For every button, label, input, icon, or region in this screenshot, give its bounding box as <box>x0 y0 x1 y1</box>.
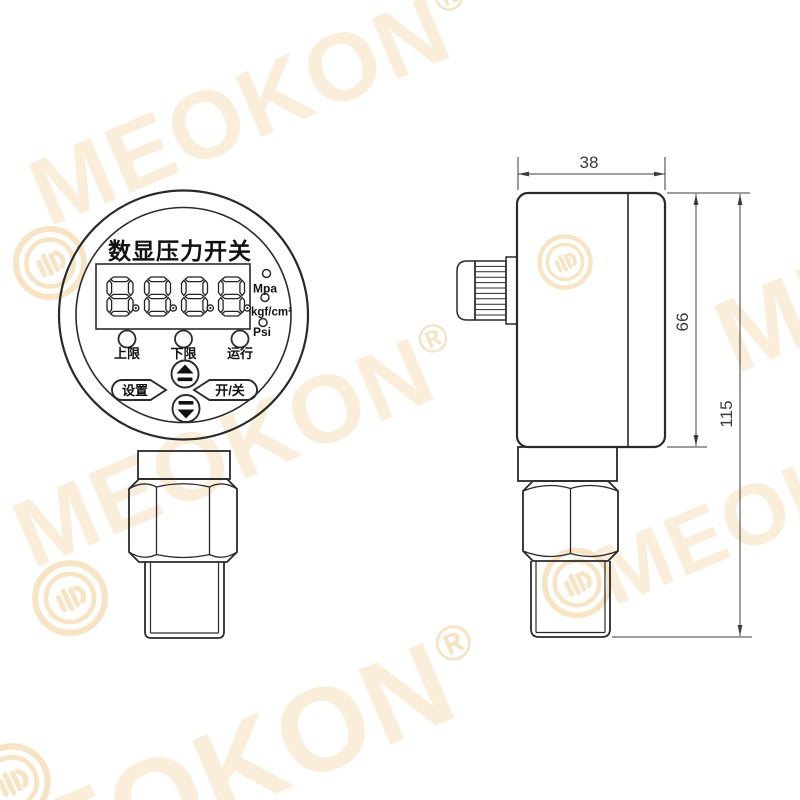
product-title: 数显压力开关 <box>108 238 252 264</box>
dim-value-case-height: 66 <box>673 313 692 332</box>
connector-neck <box>138 451 230 479</box>
button-panel: 设置 开/关 <box>112 361 257 423</box>
dimension-total-height-115: 115 <box>717 194 742 636</box>
case-body <box>517 193 665 447</box>
hex-nut <box>129 479 237 562</box>
connector-neck <box>518 447 617 481</box>
dim-arrow-icon <box>738 194 743 205</box>
unit-label-kgfcm2: kgf/cm² <box>251 307 292 319</box>
set-button: 设置 <box>112 380 166 400</box>
unit-label-psi: Psi <box>253 325 271 339</box>
status-label-running: 运行 <box>227 346 253 361</box>
gland-flange <box>506 257 517 324</box>
seven-segment-digits <box>107 277 250 316</box>
dim-arrow-icon <box>518 172 529 177</box>
status-led-running <box>232 331 249 348</box>
threaded-stem <box>145 562 224 638</box>
front-view: 数显压力开关 Mpa kgf/cm² Psi 上限 下限 运行 <box>59 191 308 639</box>
status-label-lower-limit: 下限 <box>170 346 197 361</box>
status-indicators: 上限 下限 运行 <box>114 331 253 362</box>
status-label-upper-limit: 上限 <box>114 346 141 361</box>
hex-nut <box>523 481 618 561</box>
down-button <box>173 395 200 422</box>
dimension-annotations: 38 66 115 <box>518 153 752 637</box>
unit-led-mpa <box>263 270 271 278</box>
power-button: 开/关 <box>194 380 257 400</box>
status-led-lower-limit <box>175 331 192 348</box>
dim-arrow-icon <box>738 625 743 636</box>
dim-arrow-icon <box>654 172 665 177</box>
side-view: 38 66 115 <box>457 153 752 637</box>
gland-ribbed-body <box>475 261 506 320</box>
set-button-label: 设置 <box>122 383 148 398</box>
dim-value-total-height: 115 <box>717 400 736 427</box>
up-arrow-icon <box>177 365 194 374</box>
threaded-stem <box>531 561 610 637</box>
dimension-case-height-66: 66 <box>673 194 698 446</box>
dim-arrow-icon <box>694 194 699 205</box>
gland-ribs <box>475 266 506 315</box>
down-arrow-icon <box>178 410 195 419</box>
gland-dome-cap <box>457 261 475 320</box>
status-led-upper-limit <box>119 331 136 348</box>
dim-arrow-icon <box>694 435 699 446</box>
dimension-width-38: 38 <box>518 153 665 176</box>
dim-value-width: 38 <box>580 153 599 172</box>
power-button-label: 开/关 <box>215 383 245 398</box>
cable-gland <box>457 257 517 324</box>
up-button <box>172 361 199 388</box>
technical-drawing-page: MEOKON® MEOKON® MEOKON® MEOKON® MEOKON® … <box>0 0 800 800</box>
